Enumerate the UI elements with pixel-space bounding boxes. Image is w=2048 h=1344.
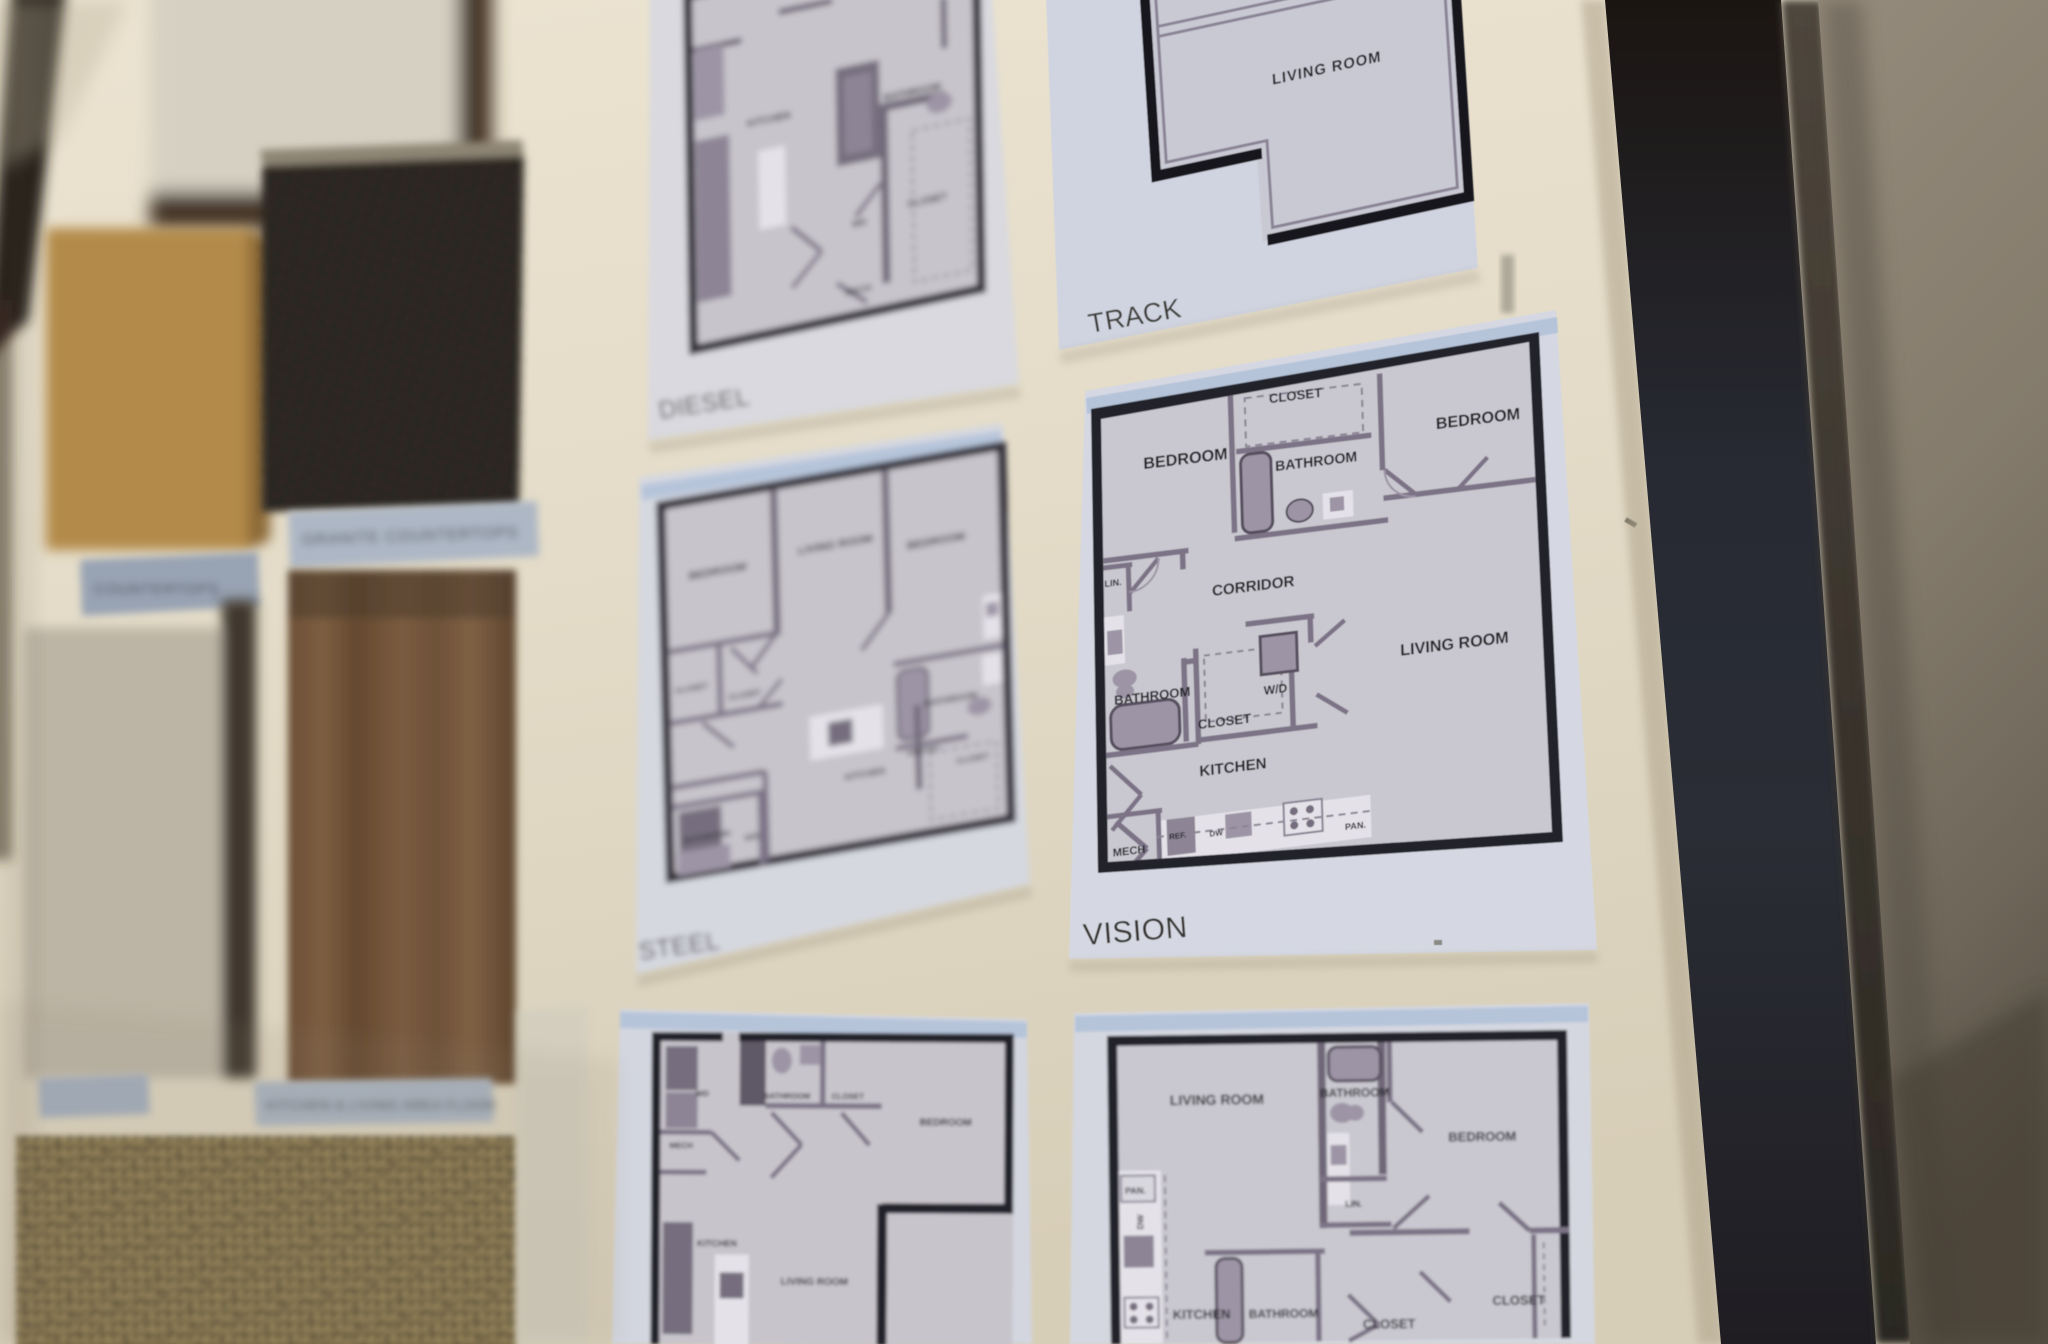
svg-text:KITCHEN: KITCHEN xyxy=(697,1238,737,1248)
svg-text:MECH: MECH xyxy=(669,1141,693,1150)
svg-text:KITCHEN: KITCHEN xyxy=(1173,1306,1231,1322)
svg-text:W/D: W/D xyxy=(1264,681,1288,698)
svg-text:LIN.: LIN. xyxy=(1104,577,1121,589)
svg-text:LIN.: LIN. xyxy=(1345,1199,1362,1209)
svg-text:DW: DW xyxy=(1135,1214,1145,1230)
svg-text:BATHROOM: BATHROOM xyxy=(764,1092,811,1101)
svg-text:BEDROOM: BEDROOM xyxy=(1448,1129,1516,1145)
svg-text:WD: WD xyxy=(696,1089,710,1098)
svg-text:COUNTERTOPS: COUNTERTOPS xyxy=(94,581,219,598)
svg-text:DW: DW xyxy=(1209,828,1223,839)
svg-text:BATHROOM: BATHROOM xyxy=(1249,1306,1319,1321)
svg-text:BEDROOM: BEDROOM xyxy=(919,1117,971,1128)
svg-text:CLOSET: CLOSET xyxy=(832,1092,865,1101)
svg-text:LIVING ROOM: LIVING ROOM xyxy=(1170,1091,1264,1108)
svg-text:CLOSET: CLOSET xyxy=(1492,1292,1545,1308)
svg-text:PAN.: PAN. xyxy=(1125,1186,1146,1196)
svg-text:BATHROOM: BATHROOM xyxy=(1320,1085,1390,1100)
svg-text:LIVING ROOM: LIVING ROOM xyxy=(781,1277,848,1288)
svg-text:CLOSET: CLOSET xyxy=(1363,1316,1416,1332)
